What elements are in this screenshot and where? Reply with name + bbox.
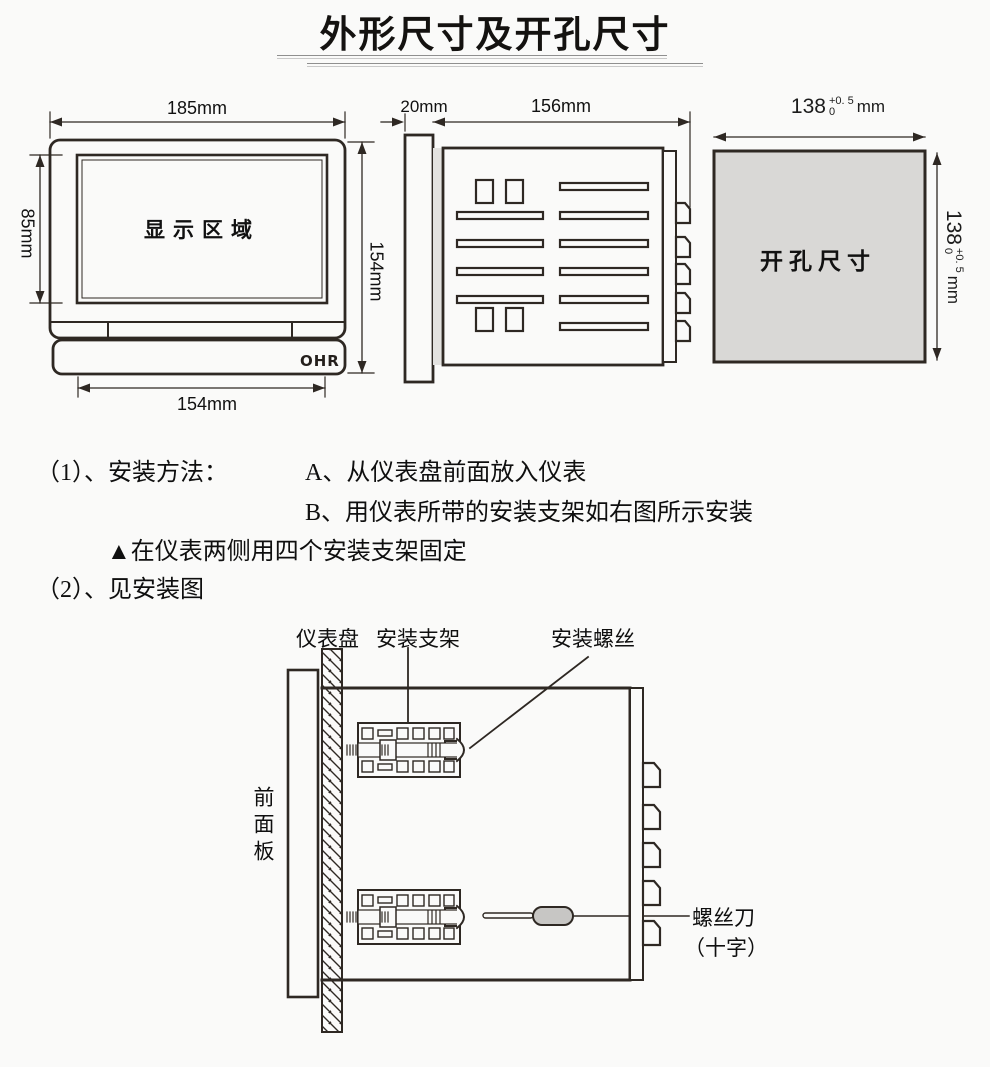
front-width-dim-label: 185mm <box>162 98 232 119</box>
cutout-width-dim-label: 138 +0. 5 0 mm <box>768 95 908 119</box>
side-bezel <box>405 135 433 382</box>
display-area-label: 显示区域 <box>112 214 292 244</box>
panel-wall-hatched <box>322 649 342 1032</box>
cutout-width-tolerance: +0. 5 0 <box>829 96 854 118</box>
title-underline-2 <box>307 63 703 67</box>
cutout-width-unit: mm <box>857 97 885 117</box>
panel-label: 仪表盘 <box>296 623 359 653</box>
cutout-height-unit: mm <box>943 276 963 304</box>
instruction-item2: （2）、见安装图 <box>36 569 204 604</box>
front-panel <box>288 670 318 997</box>
title-underline-1 <box>277 55 667 59</box>
cutout-height-tolerance: +0. 5 0 <box>942 248 964 273</box>
side-terminal-hooks <box>676 203 690 341</box>
body-terminal-hooks <box>643 763 660 945</box>
cutout-width-value: 138 <box>791 95 826 119</box>
body-depth-dim-label: 156mm <box>526 96 596 117</box>
manual-page: 外形尺寸及开孔尺寸 <box>0 0 990 1067</box>
front-height-dim-label: 154mm <box>366 242 387 298</box>
mounting-bracket-bottom <box>347 890 464 944</box>
bezel-depth-dim-label: 20mm <box>394 97 454 117</box>
screwdriver-label: 螺丝刀 <box>692 902 755 932</box>
mounting-bracket-top <box>347 723 464 777</box>
instruction-item1-label: （1）、安装方法： <box>36 452 228 487</box>
instruction-item1-a: A、从仪表盘前面放入仪表 <box>305 452 586 487</box>
bracket-label: 安装支架 <box>376 623 460 653</box>
instruction-item1-b: B、用仪表所带的安装支架如右图所示安装 <box>305 492 753 527</box>
side-view <box>381 112 690 382</box>
installation-drawing <box>0 610 990 1067</box>
cutout-label: 开孔尺寸 <box>738 242 898 276</box>
instruction-note: ▲在仪表两侧用四个安装支架固定 <box>107 531 467 566</box>
cutout-height-value: 138 <box>941 210 965 245</box>
cutout-height-dim-label: 138 +0. 5 0 mm <box>939 192 967 322</box>
front-panel-label: 前面板 <box>248 786 278 867</box>
display-height-dim-label: 85mm <box>17 209 38 255</box>
screw-leader-line <box>470 657 588 748</box>
brand-logo: OHR <box>300 352 340 370</box>
front-bottom-width-dim-label: 154mm <box>172 394 242 415</box>
screwdriver-label-sub: （十字） <box>684 932 768 962</box>
screwdriver <box>483 907 573 925</box>
page-title: 外形尺寸及开孔尺寸 <box>0 4 990 58</box>
screw-label: 安装螺丝 <box>551 623 635 653</box>
